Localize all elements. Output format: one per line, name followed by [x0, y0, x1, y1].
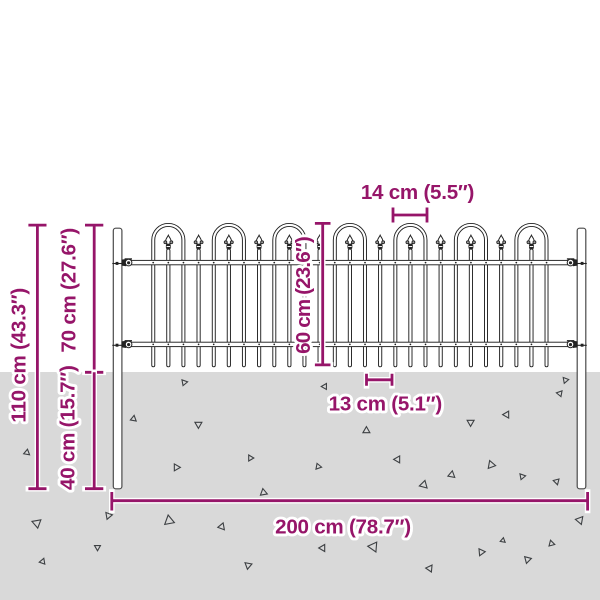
svg-text:13 cm (5.1″): 13 cm (5.1″) — [329, 392, 442, 415]
svg-text:40 cm (15.7″): 40 cm (15.7″) — [57, 365, 80, 490]
svg-text:14 cm (5.5″): 14 cm (5.5″) — [361, 181, 474, 204]
svg-text:70 cm (27.6″): 70 cm (27.6″) — [58, 228, 81, 353]
svg-text:200 cm (78.7″): 200 cm (78.7″) — [275, 515, 411, 538]
svg-text:110 cm (43.3″): 110 cm (43.3″) — [8, 288, 31, 423]
svg-text:60 cm (23.6″): 60 cm (23.6″) — [292, 237, 315, 354]
